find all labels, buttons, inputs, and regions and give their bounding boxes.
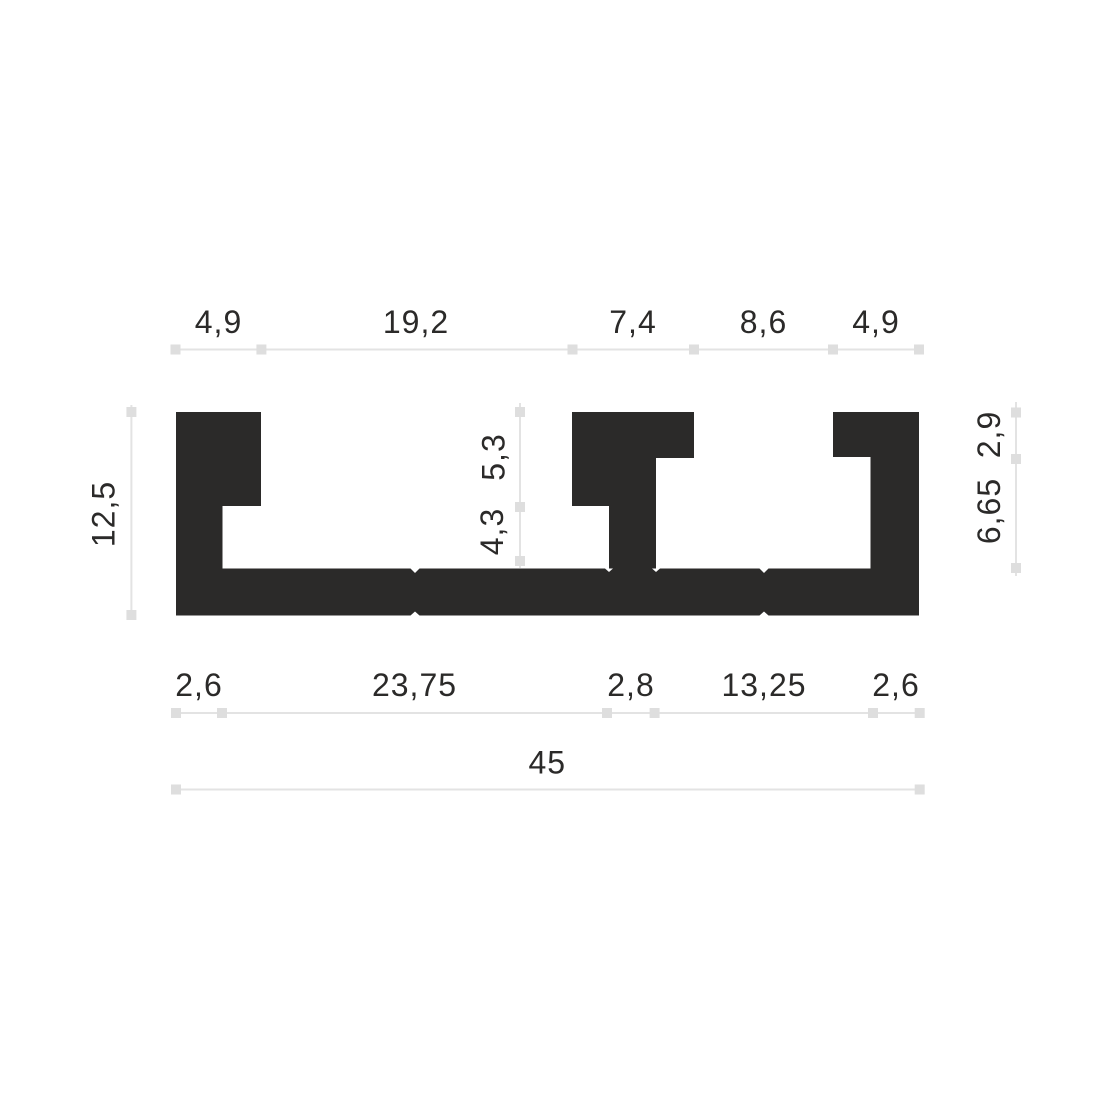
svg-text:5,3: 5,3	[476, 433, 512, 480]
svg-text:23,75: 23,75	[372, 667, 457, 703]
svg-text:4,3: 4,3	[474, 508, 510, 555]
svg-text:13,25: 13,25	[721, 667, 806, 703]
svg-text:2,6: 2,6	[175, 667, 222, 703]
svg-text:19,2: 19,2	[383, 304, 449, 340]
svg-text:6,65: 6,65	[971, 478, 1007, 544]
svg-text:12,5: 12,5	[86, 481, 122, 547]
svg-text:7,4: 7,4	[609, 304, 656, 340]
svg-text:8,6: 8,6	[740, 304, 787, 340]
svg-text:4,9: 4,9	[852, 304, 899, 340]
svg-text:45: 45	[529, 745, 567, 781]
svg-text:4,9: 4,9	[195, 304, 242, 340]
svg-text:2,8: 2,8	[607, 667, 654, 703]
svg-text:2,6: 2,6	[872, 667, 919, 703]
svg-text:2,9: 2,9	[971, 411, 1007, 458]
